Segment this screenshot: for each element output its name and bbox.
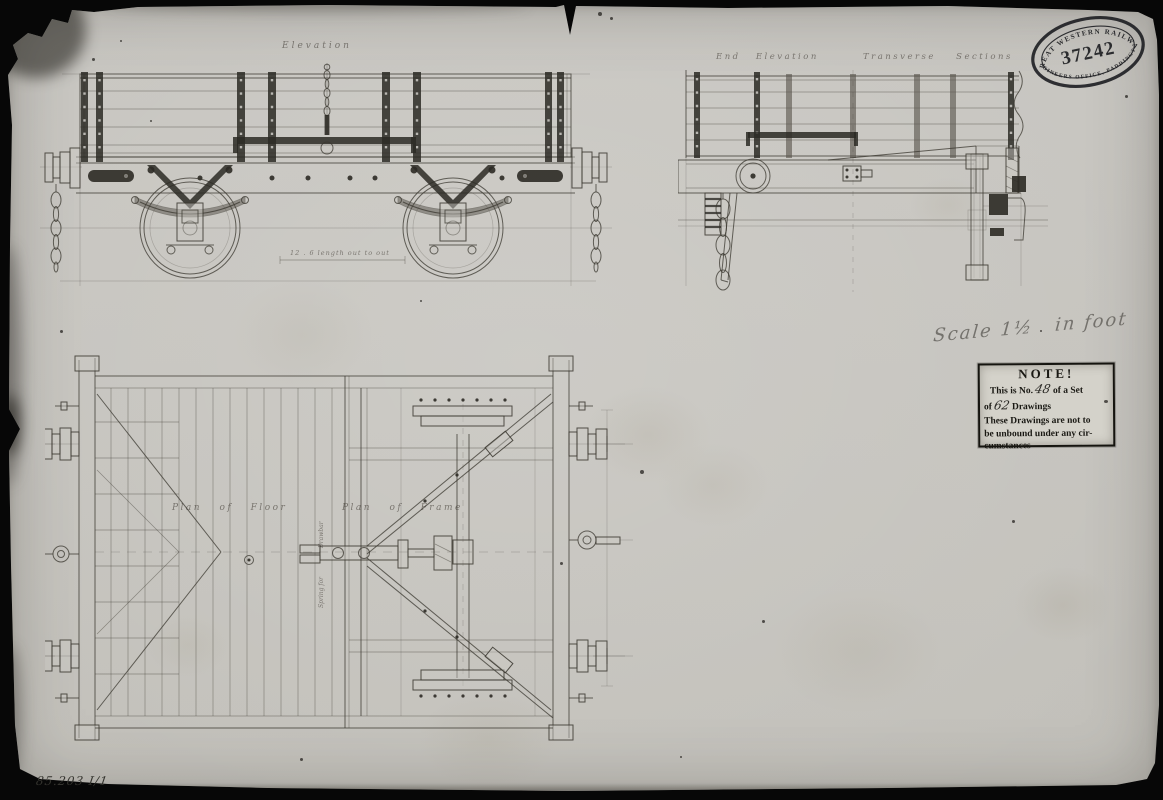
note-line1-number: 48 <box>1034 382 1052 398</box>
end-elevation-drawing <box>678 56 1053 296</box>
note-body: These Drawings are not to be unbound und… <box>980 415 1113 453</box>
label-spring-lower: Spring for <box>318 577 325 608</box>
axle-lines <box>678 70 1048 292</box>
plan-drawing <box>45 348 633 748</box>
scanned-drawing-page: Elevation End Elevation Transverse Secti… <box>0 0 1163 800</box>
right-axle-assembly <box>395 165 512 278</box>
left-edge-notch-smudge <box>0 395 20 455</box>
iron-straps <box>81 72 564 162</box>
note-title: NOTE! <box>980 366 1113 383</box>
label-end-elevation: End Elevation <box>716 52 819 62</box>
note-body-line1: These Drawings are not to <box>984 416 1091 427</box>
label-side-elevation: Elevation <box>282 41 352 51</box>
note-line2-number: 62 <box>993 398 1011 414</box>
note-line2-post: Drawings <box>1012 402 1051 412</box>
left-buffer-chain <box>40 148 82 272</box>
label-plan-of-frame: Plan of Frame <box>342 503 463 513</box>
label-dimension-note: 12 . 6 length out to out <box>290 249 390 257</box>
label-spring-upper: Drawbar <box>318 521 325 548</box>
note-body-line2: be unbound under any cir- <box>984 428 1092 439</box>
left-axle-assembly <box>132 165 249 278</box>
note-body-line3: cumstances <box>984 441 1031 451</box>
note-line2-pre: of <box>984 402 992 412</box>
bottom-edge-wear <box>8 783 1159 793</box>
side-elevation-drawing <box>40 53 612 293</box>
label-plan-of-floor: Plan of Floor <box>172 503 287 513</box>
note-line1-pre: This is No. <box>990 386 1033 396</box>
note-line1-post: of a Set <box>1053 386 1083 396</box>
top-edge-smudge <box>108 0 528 11</box>
end-tie-bar <box>746 132 858 146</box>
note-box: NOTE! This is No. 48 of a Set of 62 Draw… <box>978 363 1116 448</box>
guard-iron <box>721 193 737 282</box>
note-line-2: of 62 Drawings <box>980 397 1113 414</box>
right-buffer-chain <box>570 148 612 272</box>
note-line-1: This is No. 48 of a Set <box>980 382 1113 399</box>
underframe <box>76 157 575 193</box>
wheel-section <box>966 154 988 280</box>
label-transverse-sections: Transverse Sections <box>863 52 1013 62</box>
left-lower-smudge <box>0 645 22 785</box>
reference-number: 85.203 I/1 <box>35 774 109 788</box>
spring-block <box>705 193 721 235</box>
